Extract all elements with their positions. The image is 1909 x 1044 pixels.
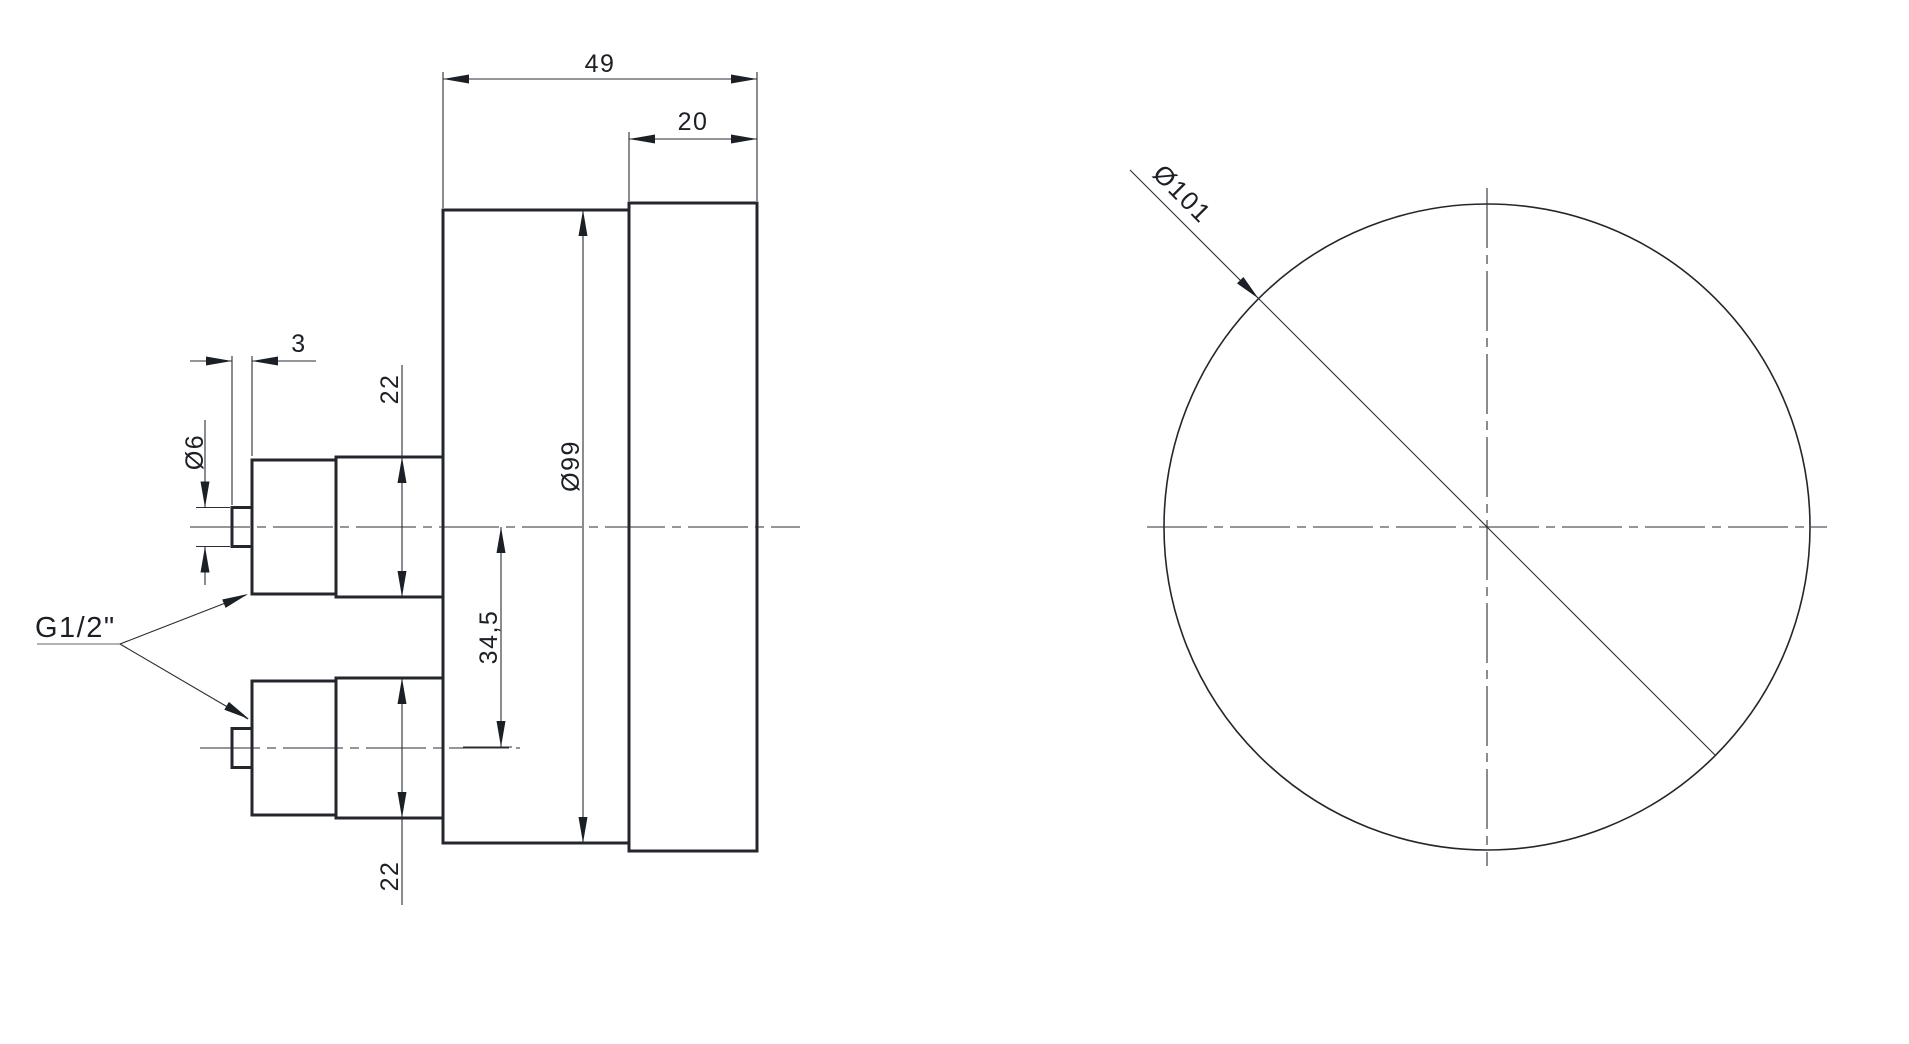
dimension-label-case-diameter: Ø99: [557, 440, 585, 492]
side-view: 49 20 3 Ø6: [35, 50, 800, 905]
dimension-total-depth: 49: [443, 50, 757, 208]
arrowhead-right: [252, 357, 278, 366]
arrowhead-top: [398, 457, 407, 483]
dimension-stub-diameter: Ø6: [181, 420, 230, 585]
arrowhead-right: [731, 75, 757, 84]
dimension-lower-connection: 22: [376, 678, 407, 905]
dimension-label-lower-connection: 22: [376, 861, 404, 892]
arrowhead-bottom: [497, 721, 506, 747]
drawing-page: 49 20 3 Ø6: [0, 0, 1909, 1044]
thread-callout: G1/2": [35, 594, 249, 719]
dimension-label-connection-offset: 34,5: [475, 610, 503, 665]
dimension-label-stub-diameter: Ø6: [181, 434, 209, 470]
arrowhead-left: [443, 75, 469, 84]
dimension-front-diameter: Ø101: [1130, 158, 1715, 755]
dimension-label-upper-connection: 22: [376, 374, 404, 405]
leader-arrowhead-upper: [222, 594, 248, 608]
arrowhead-on-circle: [1237, 277, 1259, 299]
arrowhead-right: [731, 135, 757, 144]
dimension-label-stub-length: 3: [291, 330, 306, 358]
dimension-upper-connection: 22: [376, 365, 407, 597]
arrowhead-bottom: [398, 571, 407, 597]
dimension-bezel-depth: 20: [629, 108, 757, 201]
arrowhead-top: [579, 210, 588, 236]
thread-label: G1/2": [35, 612, 116, 644]
dimension-label-bezel-depth: 20: [678, 108, 709, 136]
dimension-label-front-diameter: Ø101: [1147, 158, 1217, 228]
arrowhead-bottom: [579, 817, 588, 843]
drawing-canvas: 49 20 3 Ø6: [0, 0, 1909, 1044]
arrowhead-top: [497, 527, 506, 553]
arrowhead-bottom: [201, 547, 210, 573]
arrowhead-bottom: [398, 792, 407, 818]
arrowhead-top: [398, 678, 407, 704]
arrowhead-left: [206, 357, 232, 366]
dimension-label-total-depth: 49: [585, 50, 616, 78]
arrowhead-left: [629, 135, 655, 144]
arrowhead-top: [201, 482, 210, 508]
dimension-line-diagonal: [1130, 170, 1715, 755]
leader-arrowhead-lower: [224, 702, 249, 719]
dimension-connection-offset: 34,5: [463, 527, 512, 747]
front-view: Ø101: [1130, 158, 1827, 866]
